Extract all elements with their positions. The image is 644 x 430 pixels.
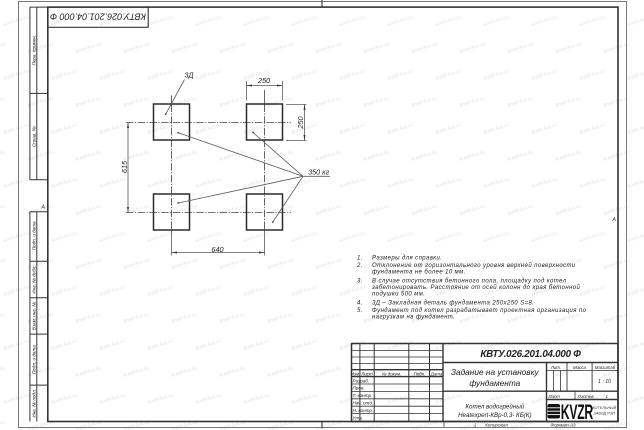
- svg-text:подушки 500 мм.: подушки 500 мм.: [372, 292, 425, 298]
- svg-text:615: 615: [120, 160, 129, 173]
- svg-text:4.: 4.: [357, 301, 363, 307]
- svg-text:Взам. инв. №: Взам. инв. №: [31, 302, 36, 330]
- svg-text:Справ. №: Справ. №: [31, 126, 36, 147]
- svg-text:№ докум.: № докум.: [382, 371, 401, 376]
- svg-text:Лит.: Лит.: [550, 365, 561, 370]
- svg-text:Подп. и дата: Подп. и дата: [31, 221, 36, 250]
- svg-text:1: 1: [474, 423, 477, 428]
- svg-text:3Д – Закладная деталь фундамен: 3Д – Закладная деталь фундамента 250х250…: [372, 301, 534, 307]
- svg-text:Фундамент под котел разрабатыв: Фундамент под котел разрабатывает проект…: [372, 308, 587, 314]
- svg-text:фундамента не более 10 мм.: фундамента не более 10 мм.: [372, 269, 466, 275]
- svg-text:ЗАВОД РЭП: ЗАВОД РЭП: [593, 412, 615, 416]
- svg-text:Инв. № подл.: Инв. № подл.: [31, 389, 36, 418]
- svg-text:Перв. примен.: Перв. примен.: [31, 35, 36, 66]
- svg-text:Лист: Лист: [548, 394, 561, 399]
- svg-text:250: 250: [296, 115, 305, 129]
- svg-text:забетонировать. Расстояние от: забетонировать. Расстояние от осей колон…: [371, 284, 580, 291]
- svg-text:5.: 5.: [357, 308, 363, 314]
- svg-text:Подп. и дата: Подп. и дата: [31, 345, 36, 374]
- svg-text:Котел водогрейный: Котел водогрейный: [465, 403, 524, 410]
- svg-text:Масса: Масса: [573, 365, 587, 370]
- svg-text:А: А: [612, 217, 617, 223]
- svg-text:Подп.: Подп.: [414, 371, 426, 376]
- svg-text:Масштаб: Масштаб: [595, 365, 616, 370]
- svg-text:Утв.: Утв.: [353, 415, 363, 420]
- svg-text:фундамента: фундамента: [469, 378, 520, 388]
- svg-text:Копировал: Копировал: [485, 423, 508, 428]
- svg-text:КОТЕЛЬНЫЙ: КОТЕЛЬНЫЙ: [592, 406, 616, 410]
- svg-text:Т. контр.: Т. контр.: [353, 393, 373, 398]
- svg-text:Лист: Лист: [360, 371, 373, 376]
- svg-text:1.: 1.: [357, 256, 363, 262]
- svg-text:Heatexpert-КВр-0,3- КБ(К): Heatexpert-КВр-0,3- КБ(К): [458, 412, 531, 419]
- svg-text:3Д: 3Д: [185, 72, 194, 79]
- svg-text:Н. контр.: Н. контр.: [353, 408, 374, 413]
- svg-text:Размеры для справки.: Размеры для справки.: [372, 256, 442, 262]
- svg-text:Пров.: Пров.: [353, 386, 365, 391]
- svg-text:Инв. № дубл.: Инв. № дубл.: [31, 265, 36, 293]
- svg-text:Разраб.: Разраб.: [353, 378, 370, 383]
- svg-text:Изм.: Изм.: [351, 371, 360, 376]
- svg-text:нагрузкам на фундамент.: нагрузкам на фундамент.: [372, 314, 455, 320]
- svg-text:350 кг: 350 кг: [308, 167, 329, 176]
- svg-text:KVZR: KVZR: [561, 400, 594, 425]
- svg-text:А: А: [41, 205, 46, 211]
- svg-text:250: 250: [257, 76, 271, 85]
- svg-text:2.: 2.: [356, 263, 363, 269]
- svg-text:Нач. отд.: Нач. отд.: [353, 401, 374, 406]
- svg-text:3.: 3.: [357, 278, 363, 284]
- svg-text:640: 640: [211, 245, 224, 254]
- svg-text:Отклонение от горизонтального: Отклонение от горизонтального уровня вер…: [372, 262, 576, 269]
- svg-text:Листов: Листов: [577, 394, 595, 399]
- svg-text:В случае отсутствия бетонного: В случае отсутствия бетонного пола, площ…: [372, 278, 567, 284]
- svg-text:1 : 10: 1 : 10: [598, 379, 611, 385]
- svg-text:Формат А3: Формат А3: [550, 423, 576, 428]
- svg-text:КВТУ.026.201.04.000 Ф: КВТУ.026.201.04.000 Ф: [480, 349, 581, 360]
- svg-text:КВТУ.026.201.04.000 Ф: КВТУ.026.201.04.000 Ф: [50, 12, 146, 22]
- svg-text:Дата: Дата: [430, 371, 443, 376]
- svg-text:Задание на установку: Задание на установку: [451, 367, 540, 377]
